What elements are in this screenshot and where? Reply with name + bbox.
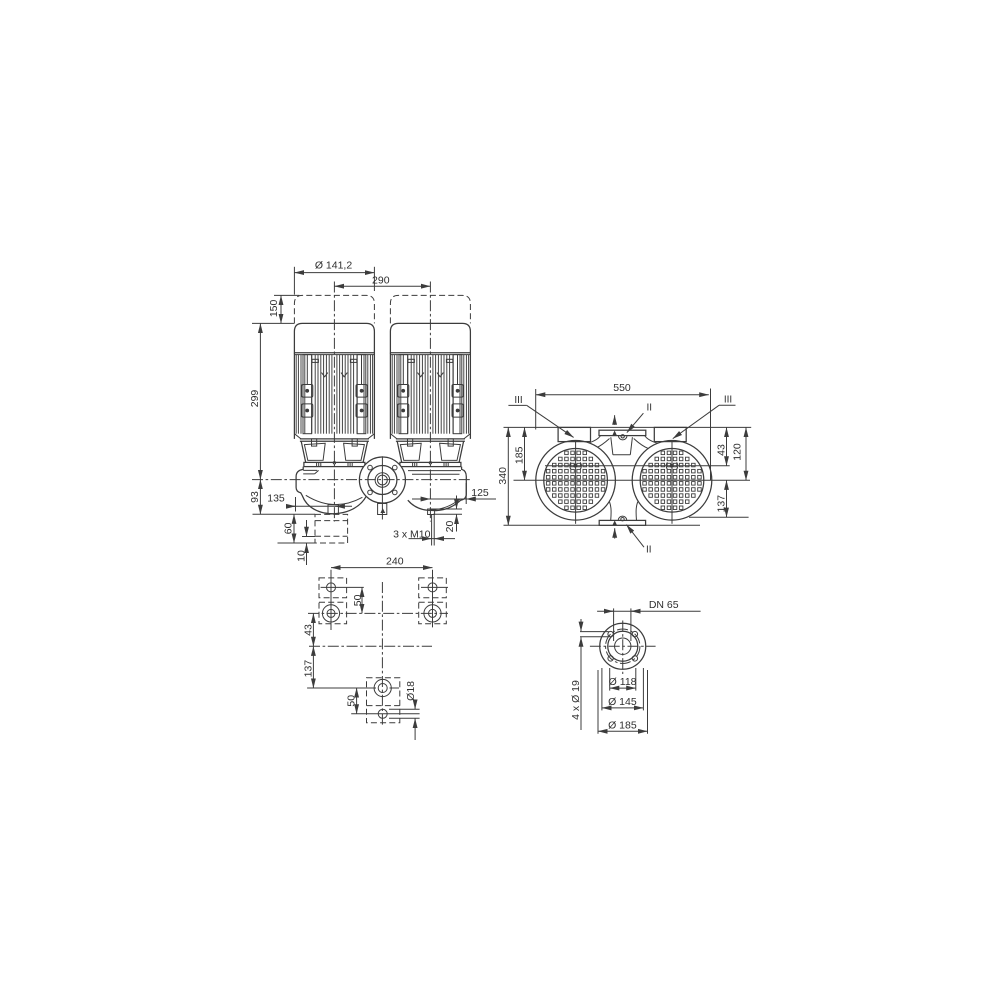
svg-text:120: 120 (731, 443, 743, 461)
svg-text:240: 240 (386, 555, 404, 567)
svg-text:20: 20 (444, 521, 456, 533)
svg-text:125: 125 (471, 487, 489, 499)
svg-text:II: II (646, 544, 652, 555)
svg-text:93: 93 (249, 491, 261, 503)
svg-text:185: 185 (514, 446, 526, 464)
svg-text:150: 150 (268, 299, 280, 317)
svg-text:50: 50 (345, 695, 357, 707)
svg-text:550: 550 (613, 382, 631, 394)
svg-text:137: 137 (715, 495, 727, 513)
svg-text:137: 137 (303, 660, 315, 678)
svg-text:III: III (724, 395, 732, 406)
svg-text:DN 65: DN 65 (649, 599, 679, 611)
svg-text:299: 299 (249, 390, 261, 408)
svg-text:340: 340 (497, 467, 509, 485)
svg-text:II: II (647, 402, 653, 413)
svg-text:43: 43 (716, 444, 728, 456)
svg-text:Ø 185: Ø 185 (608, 719, 637, 731)
svg-text:Ø 141,2: Ø 141,2 (315, 260, 353, 272)
svg-text:290: 290 (372, 275, 390, 287)
svg-text:Ø 118: Ø 118 (609, 676, 637, 688)
svg-text:135: 135 (267, 492, 285, 504)
svg-text:4 x Ø 19: 4 x Ø 19 (570, 680, 582, 720)
svg-text:Ø18: Ø18 (405, 681, 417, 701)
svg-text:Ø 145: Ø 145 (608, 696, 637, 708)
svg-text:III: III (514, 395, 522, 406)
svg-text:60: 60 (282, 522, 294, 534)
svg-text:10: 10 (296, 550, 308, 562)
